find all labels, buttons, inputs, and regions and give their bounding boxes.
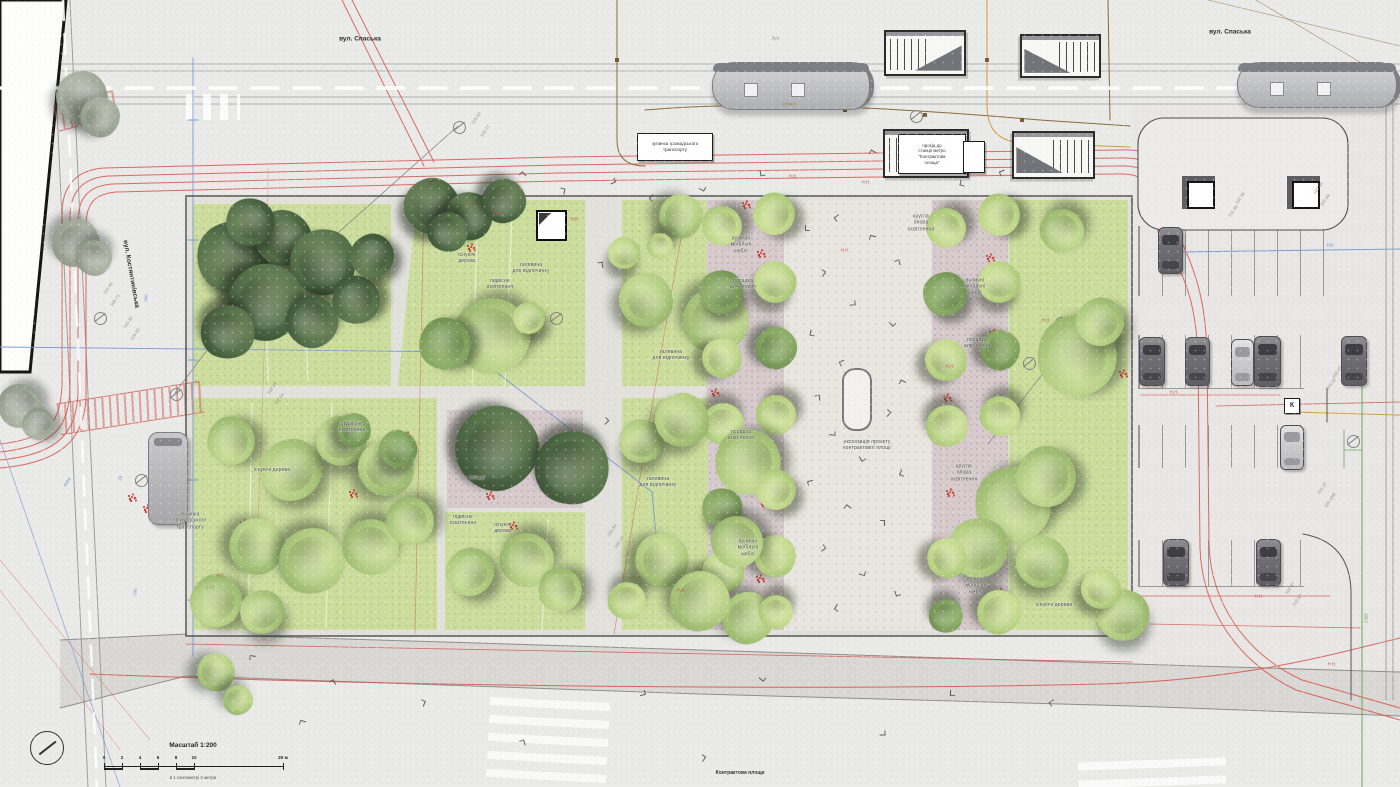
- flower-bed: [714, 391, 716, 393]
- scale-tick-label: 10: [191, 755, 196, 760]
- survey-point-icon: [550, 312, 563, 325]
- flower-bed: [131, 496, 133, 498]
- boxed-label: зупинка громадського транспорту: [637, 133, 713, 161]
- scale-bar-segment: [140, 768, 158, 771]
- parked-car: [1280, 425, 1304, 470]
- person-figure: [849, 300, 855, 306]
- parked-car: [1254, 336, 1281, 387]
- annotation-blue: 100: [1326, 243, 1333, 248]
- annotation-red: Н.Н.: [493, 211, 502, 216]
- flower-bed: [760, 252, 762, 254]
- metro-parapet: [886, 32, 964, 36]
- parked-car: [1341, 336, 1367, 386]
- tram-window: [1270, 82, 1284, 96]
- scale-bar-segment: [104, 768, 122, 771]
- metro-stairs-icon: [890, 39, 929, 70]
- person-figure: [950, 690, 955, 696]
- scale-tick-label: 0: [103, 755, 106, 760]
- scale-tick-label: 2: [121, 755, 124, 760]
- annotation-red: Н.Н.: [946, 364, 955, 369]
- metro-parapet: [1014, 133, 1093, 137]
- annotation-grey: Зул.: [772, 36, 781, 41]
- survey-point-icon: [170, 388, 183, 401]
- flower-bed: [759, 577, 761, 579]
- metro-stairs-icon: [1057, 42, 1096, 72]
- plan-label: існуючі дерева: [1036, 602, 1072, 608]
- flower-bed: [946, 396, 948, 398]
- scale-tick-label: 6: [157, 755, 160, 760]
- metro-entrance: [884, 30, 966, 76]
- parked-car: [1231, 339, 1254, 386]
- flower-bed: [352, 492, 354, 494]
- scale-tick: [122, 763, 123, 770]
- plan-label: підвісне освітлення: [339, 421, 366, 434]
- plan-label: посадка алеї ясеня: [964, 337, 990, 350]
- scale-bar-segment: [176, 768, 194, 771]
- plan-label: існуючі дерева: [458, 252, 476, 265]
- parked-car: [1163, 539, 1189, 586]
- parked-car: [1158, 227, 1183, 274]
- scale-tick-label: 8: [175, 755, 178, 760]
- annotation-red: Н.Н.: [862, 180, 871, 185]
- annotation-blue: 200: [132, 588, 138, 596]
- plan-label: галявина для відпочинку: [653, 349, 690, 362]
- plan-caption: Контрактова площа: [716, 770, 765, 776]
- annotation-red: Н.Н.: [789, 174, 798, 179]
- plan-label: вуличні мобільні меблі: [966, 577, 987, 596]
- boxed-label: прохід до станції метро "Контрактова пло…: [898, 134, 966, 174]
- survey-point-icon: [1347, 435, 1360, 448]
- street-name-label: вул. Спаська: [339, 36, 381, 43]
- exhibition-stand: [842, 368, 872, 431]
- annotation-blue: 28: [117, 475, 123, 480]
- annotation-brown: 200м.п.: [782, 101, 797, 107]
- survey-point-icon: [910, 110, 923, 123]
- plan-label: посадка алеї ясеня: [730, 278, 756, 291]
- plan-label: площа: [469, 475, 485, 481]
- person-figure: [429, 180, 435, 185]
- ventilation-kiosk: [1182, 176, 1215, 209]
- plan-label: вуличні мобільні меблі: [731, 236, 752, 255]
- plan-label: посадка алеї ясеня: [728, 429, 754, 442]
- scale-tick-label: 20 м: [278, 755, 288, 760]
- person-figure: [879, 730, 885, 735]
- flower-bed: [489, 494, 491, 496]
- metro-entrance: [1012, 131, 1095, 179]
- flower-bed: [745, 203, 747, 205]
- annotation-blue: 300: [143, 294, 149, 302]
- site-plan-canvas: Масштаб 1:200 в 1 сантиметрі 2 метри 024…: [0, 0, 1400, 787]
- survey-point-icon: [94, 312, 107, 325]
- park-kiosk: [536, 210, 567, 241]
- scale-tick: [194, 763, 195, 770]
- scale-tick: [158, 763, 159, 770]
- parked-car: [1139, 337, 1165, 386]
- scale-bar: Масштаб 1:200 в 1 сантиметрі 2 метри 024…: [100, 742, 400, 784]
- north-arrow: [30, 731, 64, 765]
- annotation-red: Н.Н.: [677, 588, 686, 593]
- flower-bed: [512, 524, 514, 526]
- plan-label: вуличні мобільні меблі: [738, 539, 759, 558]
- annotation-red: Н.Н.: [571, 217, 580, 222]
- survey-point-icon: [453, 121, 466, 134]
- flower-bed: [1122, 372, 1124, 374]
- person-figure: [249, 655, 256, 661]
- plan-label: підвісне освітлення: [450, 514, 477, 527]
- scale-tick-label: 4: [139, 755, 142, 760]
- tram-window: [744, 83, 758, 97]
- tram-window: [791, 83, 805, 97]
- plan-label: галявина для відпочинку: [640, 476, 677, 489]
- scale-caption: в 1 сантиметрі 2 метри: [170, 775, 217, 780]
- annotation-red: Н.Н.: [217, 573, 226, 578]
- scale-tick: [283, 763, 284, 770]
- tram-window: [1317, 82, 1331, 96]
- annotation-red: Н.Н.: [841, 248, 850, 253]
- plan-label: кругла опора освітлення: [951, 464, 978, 483]
- plan-label: підвісне освітлення: [487, 278, 514, 291]
- plan-label: кругла опора освітлення: [908, 214, 935, 233]
- flower-bed: [470, 246, 472, 248]
- metro-entrance: [1020, 34, 1101, 78]
- annotation-green: 2308: [1364, 613, 1369, 623]
- boxed-label: [963, 141, 985, 173]
- person-figure: [829, 430, 835, 436]
- plan-label: експозиція проекту контрактової площі: [843, 439, 890, 452]
- boxed-label: К: [1284, 398, 1300, 414]
- annotation-red: Н.Н.: [1328, 662, 1337, 667]
- person-figure: [598, 262, 604, 269]
- annotation-grey: 1.53: [206, 585, 215, 590]
- parked-car: [1256, 539, 1281, 586]
- plan-label: зупинка громадського транспорту: [174, 512, 207, 531]
- person-figure: [815, 395, 821, 402]
- annotation-red: Н.Н.: [1170, 390, 1179, 395]
- tram-vehicle: [1237, 62, 1400, 108]
- annotation-red: Н.Н.: [1255, 594, 1264, 599]
- survey-point-icon: [1023, 357, 1036, 370]
- survey-point-icon: [135, 474, 148, 487]
- flower-bed: [949, 491, 951, 493]
- metro-stairs-icon: [1050, 140, 1090, 173]
- scale-title: Масштаб 1:200: [169, 742, 216, 749]
- parked-car: [1185, 337, 1210, 386]
- person-figure: [805, 225, 810, 231]
- annotation-red: Н.Н.: [1042, 318, 1051, 323]
- plan-label: існуючі дерева: [254, 467, 290, 473]
- plan-label: галявина для відпочинку: [513, 262, 550, 275]
- metro-parapet: [1022, 36, 1099, 40]
- person-figure: [880, 520, 885, 526]
- person-figure: [760, 170, 766, 177]
- tree: [619, 273, 674, 328]
- street-name-label: вул. Спаська: [1209, 29, 1251, 36]
- plan-label: існуючі дерева: [494, 522, 512, 535]
- plan-label: вуличні мобільні меблі: [965, 278, 986, 297]
- flower-bed: [989, 256, 991, 258]
